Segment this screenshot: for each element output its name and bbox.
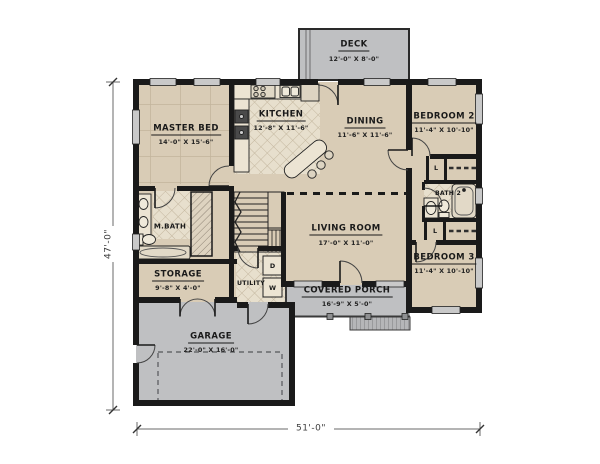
room-label-master-bath: M.BATH [154, 224, 186, 231]
dryer-label: D [270, 262, 275, 268]
window [150, 79, 176, 86]
room-dims-deck: 12'-0" X 8'-0" [329, 56, 379, 62]
window [133, 234, 140, 250]
linen-closet-label-bottom: L [433, 228, 437, 234]
room-label-kitchen: KITCHEN [257, 111, 306, 122]
room-label-master-bed: MASTER BED [151, 125, 221, 136]
room-dims-bedroom2: 11'-4" X 10'-10" [414, 127, 474, 133]
window [256, 79, 280, 86]
window [432, 307, 460, 314]
window [364, 79, 390, 86]
room-dims-living-room: 17'-0" X 11'-0" [319, 240, 374, 246]
room-dims-covered-porch: 16'-9" X 5'-0" [322, 301, 372, 307]
room-label-covered-porch: COVERED PORCH [302, 287, 393, 298]
room-dims-dining: 11'-6" X 11'-6" [338, 132, 393, 138]
bath2-sink [426, 202, 436, 215]
refrigerator [301, 84, 319, 101]
room-label-bath2: BATH 2 [435, 191, 461, 197]
window [428, 79, 456, 86]
floor-plan-page: DECK 12'-0" X 8'-0" MASTER BED 14'-0" X … [0, 0, 600, 464]
stool [325, 151, 333, 159]
walk-in-closet [191, 192, 212, 256]
room-label-deck: DECK [338, 41, 369, 52]
room-dims-storage: 9'-8" X 4'-0" [155, 285, 201, 291]
window [194, 79, 220, 86]
toilet [143, 235, 156, 245]
floor-plan-drawing [0, 0, 600, 464]
stool [308, 170, 316, 178]
window [476, 188, 483, 204]
overall-height-label: 47'-0" [105, 226, 114, 262]
room-label-living-room: LIVING ROOM [309, 225, 382, 236]
room-label-utility: UTILITY [237, 281, 265, 287]
room-label-garage: GARAGE [188, 333, 234, 344]
porch-step [350, 317, 410, 330]
room-label-storage: STORAGE [152, 271, 204, 282]
room-label-bedroom3: BEDROOM 3 [411, 254, 476, 265]
linen-closet-label-top: L [434, 165, 438, 171]
room-label-bedroom2: BEDROOM 2 [411, 113, 476, 124]
room-dims-master-bed: 14'-0" X 15'-6" [159, 139, 214, 145]
overall-width-label: 51'-0" [293, 425, 329, 434]
room-dims-bedroom3: 11'-4" X 10'-10" [414, 268, 474, 274]
window [133, 110, 140, 144]
stool [317, 161, 325, 169]
bath2-toilet-tank [439, 213, 449, 218]
washer-label: W [269, 284, 276, 290]
room-dims-garage: 22'-0" X 16'-0" [184, 347, 239, 353]
room-dims-kitchen: 12'-8" X 11'-6" [254, 125, 309, 131]
room-label-dining: DINING [345, 118, 386, 129]
